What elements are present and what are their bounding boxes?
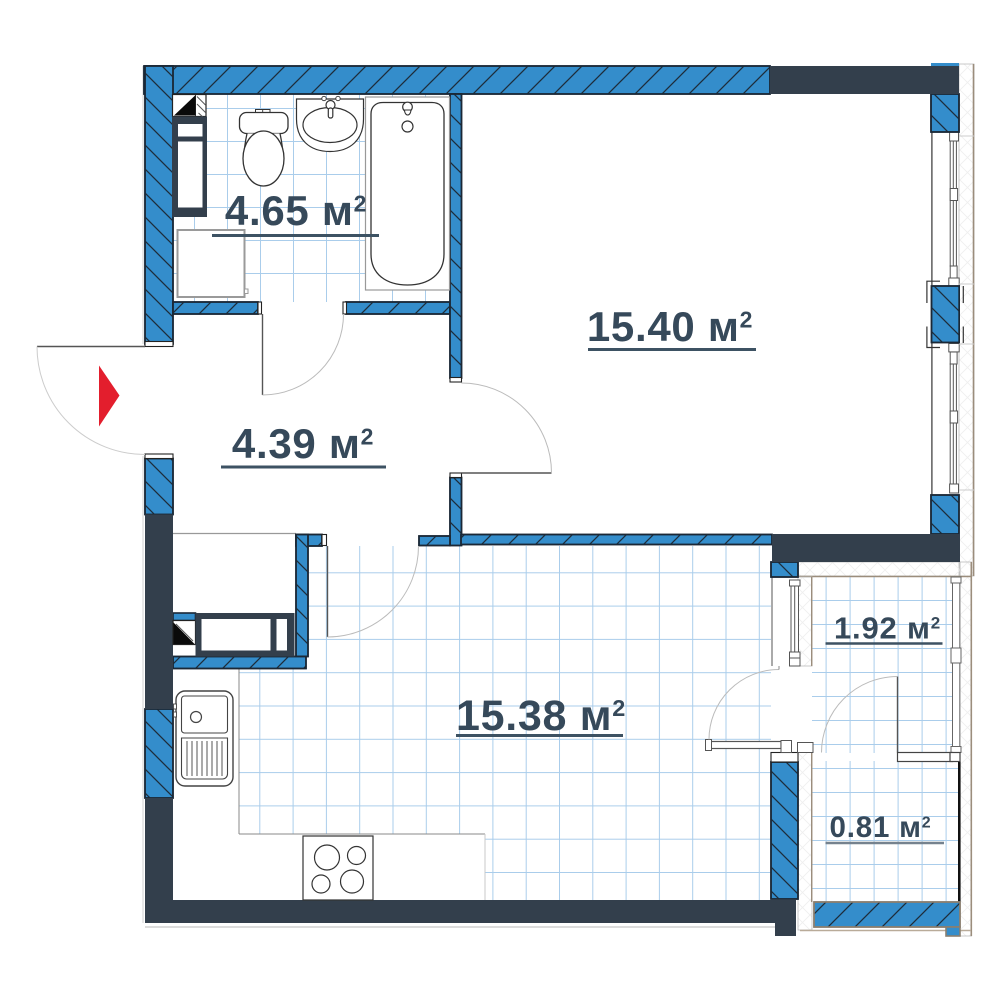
svg-text:4.65 м2: 4.65 м2 — [225, 187, 367, 234]
svg-text:15.38 м2: 15.38 м2 — [456, 692, 626, 740]
svg-text:0.81 м2: 0.81 м2 — [830, 811, 932, 844]
svg-text:15.40 м2: 15.40 м2 — [587, 303, 753, 350]
svg-text:4.39 м2: 4.39 м2 — [232, 420, 374, 467]
svg-text:1.92 м2: 1.92 м2 — [834, 611, 941, 646]
